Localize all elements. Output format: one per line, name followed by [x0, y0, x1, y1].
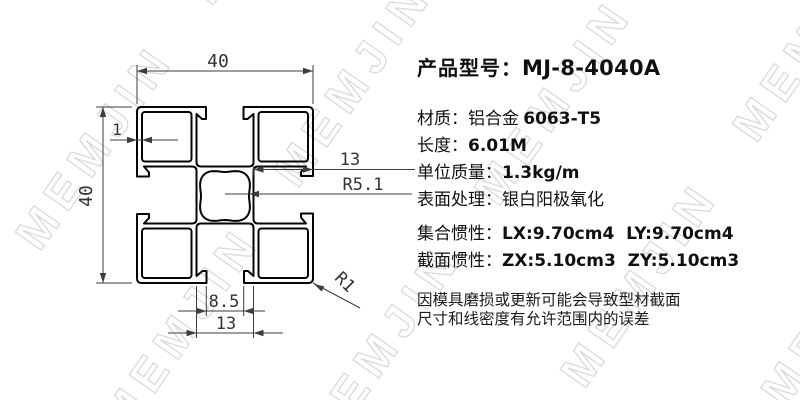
spec-panel: 产品型号：MJ-8-4040A 材质：铝合金 6063-T5 长度：6.01M …: [417, 52, 795, 329]
product-title: 产品型号：MJ-8-4040A: [417, 52, 795, 81]
spec-list: 材质：铝合金 6063-T5 长度：6.01M 单位质量：1.3kg/m 表面处…: [417, 105, 795, 274]
dim-slot-depth: 13: [340, 150, 360, 170]
dim-top-width: 40: [207, 51, 229, 72]
tolerance-note-line: 尺寸和线密度有允许范围内的误差: [417, 310, 767, 329]
corner-chamber-hole: [142, 229, 192, 279]
spec-value-bold: LX:9.70cm4 LY:9.70cm4: [502, 224, 734, 244]
dim-left-height: 40: [76, 185, 97, 207]
spec-value-bold: ZX:5.10cm3 ZY:5.10cm3: [502, 251, 739, 271]
profile-cross-section-drawing: 40 40 1 13 R5.1 8.5: [0, 0, 420, 400]
spec-value: 铝合金: [468, 109, 523, 128]
product-model-value: MJ-8-4040A: [522, 56, 660, 80]
spec-value-bold: 6.01M: [468, 136, 527, 156]
corner-chamber-hole: [142, 112, 192, 162]
corner-chamber-hole: [259, 112, 309, 162]
spec-label: 材质：: [417, 109, 468, 128]
spec-label: 截面惯性：: [417, 251, 502, 270]
corner-chamber-hole: [259, 229, 309, 279]
dim-center-radius: R5.1: [343, 175, 384, 195]
spec-label: 表面处理：: [417, 190, 502, 209]
spec-row-material: 材质：铝合金 6063-T5: [417, 105, 795, 132]
spec-row-unit-weight: 单位质量：1.3kg/m: [417, 159, 795, 186]
profile-outer-contour: [137, 107, 309, 167]
product-model-label: 产品型号：: [417, 58, 522, 80]
dim-corner-radius: R1: [330, 268, 359, 297]
spec-label: 长度：: [417, 136, 468, 155]
spec-row-length: 长度：6.01M: [417, 132, 795, 159]
spec-value-bold: 1.3kg/m: [502, 163, 580, 183]
spec-row-section-modulus: 截面惯性：ZX:5.10cm3 ZY:5.10cm3: [417, 247, 795, 274]
spec-value: 银白阳极氧化: [502, 190, 604, 209]
spec-value-bold: 6063-T5: [523, 109, 601, 129]
product-spec-sheet: MEMJIN MEMJIN MEMJIN MEMJIN MEMJIN MEMJI…: [0, 0, 800, 400]
dim-slot-width: 13: [216, 314, 236, 334]
spec-label: 集合惯性：: [417, 224, 502, 243]
dim-wall-thickness: 1: [112, 120, 122, 139]
dim-slot-opening: 8.5: [209, 292, 240, 312]
spec-row-moment-inertia: 集合惯性：LX:9.70cm4 LY:9.70cm4: [417, 220, 795, 247]
spec-row-surface-finish: 表面处理：银白阳极氧化: [417, 186, 795, 213]
center-clover-hole: [200, 171, 250, 221]
tolerance-note-line: 因模具磨损或更新可能会导致型材截面: [417, 291, 767, 310]
spec-label: 单位质量：: [417, 163, 502, 182]
tolerance-note: 因模具磨损或更新可能会导致型材截面 尺寸和线密度有允许范围内的误差: [417, 291, 767, 329]
dimension-annotations: 40 40 1 13 R5.1 8.5: [76, 51, 415, 338]
profile-outline: [137, 107, 313, 283]
